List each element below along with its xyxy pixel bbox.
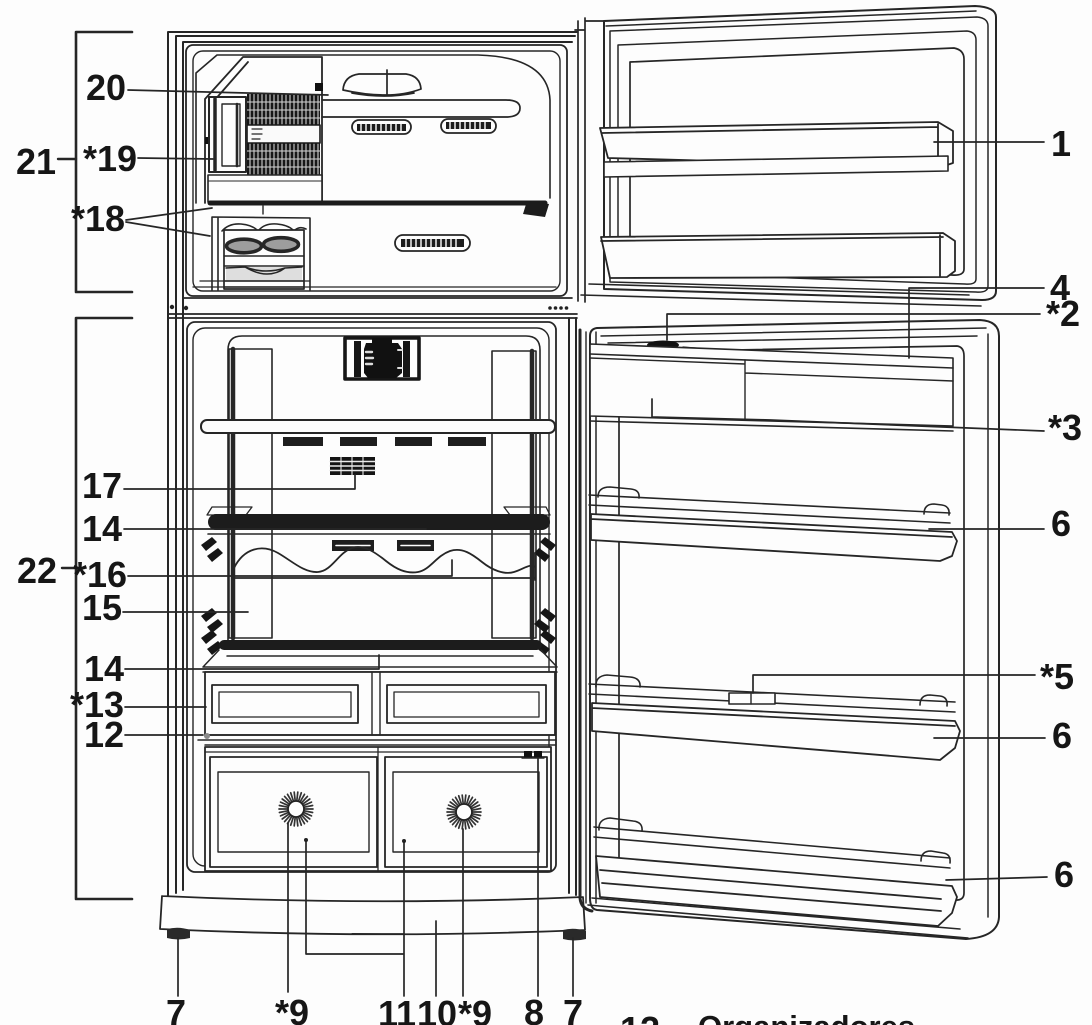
svg-text:*3: *3 — [1048, 407, 1082, 448]
svg-text:12: 12 — [84, 714, 124, 755]
svg-text:6: 6 — [1054, 854, 1074, 895]
svg-text:Organizadores: Organizadores — [698, 1009, 915, 1025]
svg-text:6: 6 — [1051, 503, 1071, 544]
svg-text:*19: *19 — [83, 138, 137, 179]
svg-text:21: 21 — [16, 141, 56, 182]
svg-text:*18: *18 — [71, 198, 125, 239]
svg-text:22: 22 — [17, 550, 57, 591]
svg-text:*9: *9 — [275, 992, 309, 1025]
svg-text:1: 1 — [1051, 123, 1071, 164]
svg-text:7: 7 — [563, 992, 583, 1025]
svg-text:7: 7 — [166, 992, 186, 1025]
svg-text:*5: *5 — [1040, 656, 1074, 697]
svg-text:20: 20 — [86, 67, 126, 108]
svg-text:14: 14 — [84, 648, 124, 689]
svg-text:14: 14 — [82, 508, 122, 549]
svg-text:17: 17 — [82, 465, 122, 506]
svg-text:*2: *2 — [1046, 293, 1080, 334]
svg-text:11: 11 — [378, 993, 416, 1025]
svg-text:8: 8 — [524, 992, 544, 1025]
svg-text:10: 10 — [417, 993, 457, 1025]
svg-text:*9: *9 — [458, 993, 492, 1025]
svg-text:15: 15 — [82, 587, 122, 628]
svg-text:6: 6 — [1052, 715, 1072, 756]
svg-text:12: 12 — [620, 1009, 660, 1025]
